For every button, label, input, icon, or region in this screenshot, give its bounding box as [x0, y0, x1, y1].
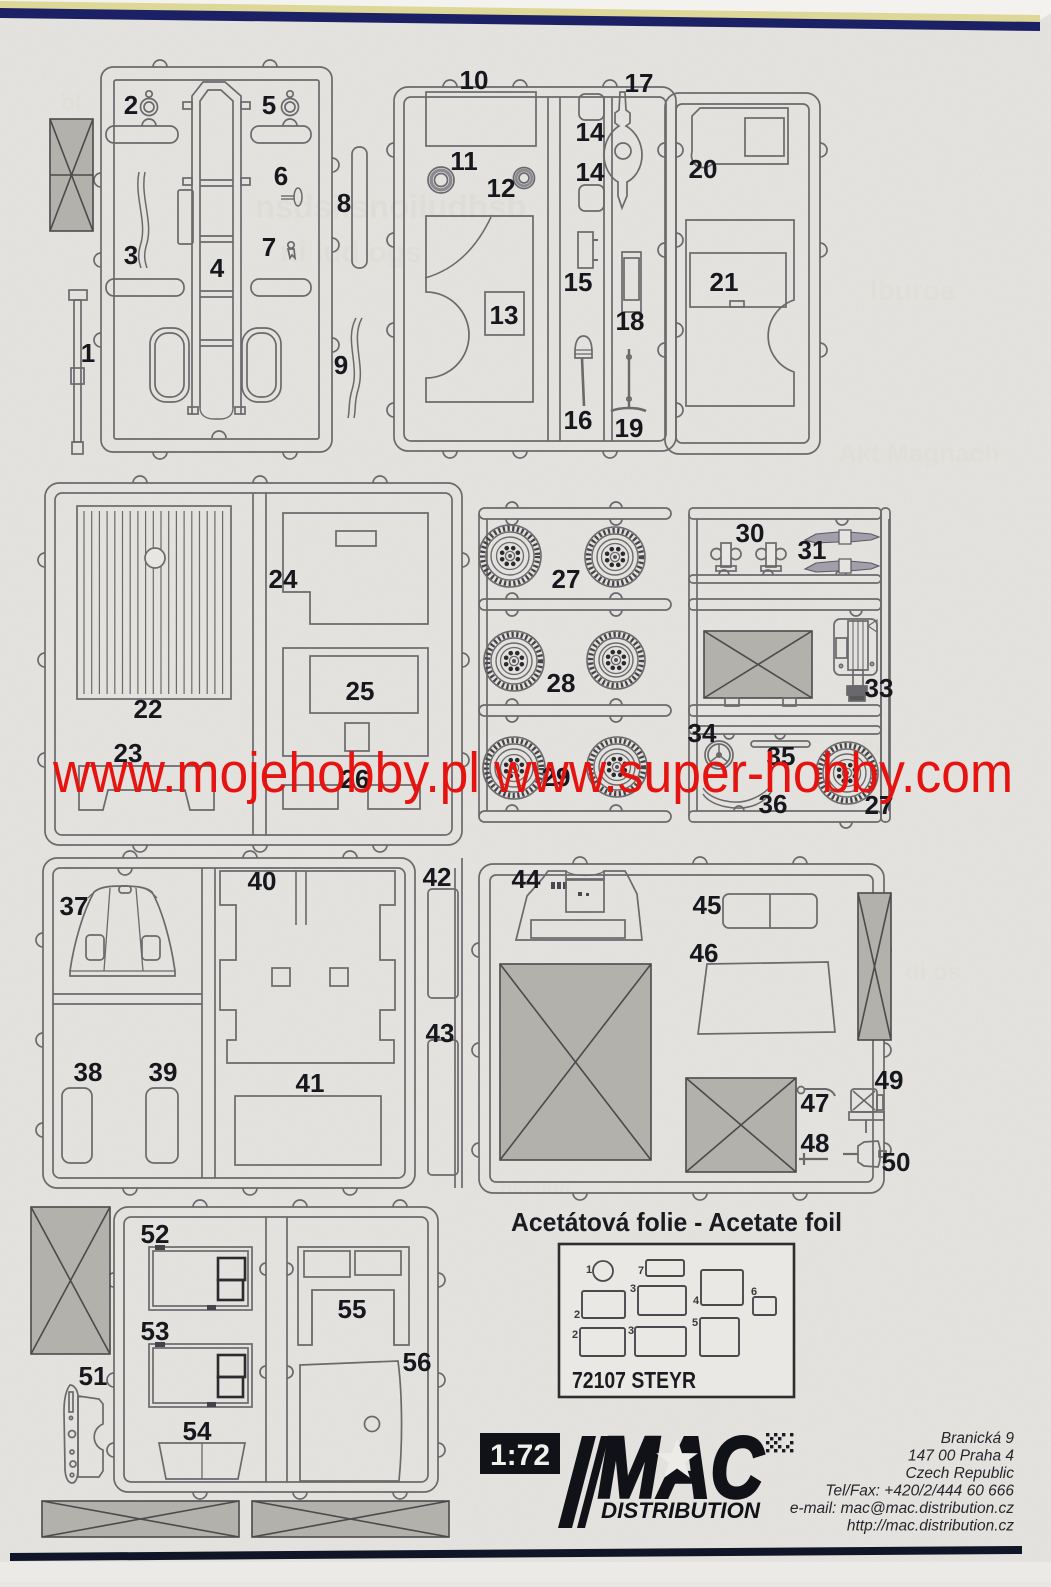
svg-text:Akt Magnach: Akt Magnach [838, 438, 1000, 468]
svg-text:147 00 Praha 4: 147 00 Praha 4 [908, 1448, 1014, 1465]
svg-text:40: 40 [248, 866, 277, 896]
svg-text:22: 22 [134, 694, 163, 724]
svg-text:42: 42 [423, 862, 452, 892]
svg-text:4: 4 [210, 253, 225, 283]
svg-text:14: 14 [576, 117, 605, 147]
svg-text:45: 45 [693, 890, 722, 920]
svg-text:bl: bl [60, 89, 81, 116]
svg-text:19: 19 [615, 413, 644, 443]
svg-text:3: 3 [124, 240, 138, 270]
svg-text:48: 48 [801, 1128, 830, 1158]
svg-text:6: 6 [751, 1286, 757, 1298]
svg-text:52: 52 [141, 1219, 170, 1249]
svg-text:lburoa: lburoa [870, 275, 956, 306]
svg-text:8: 8 [337, 188, 351, 218]
svg-text:16: 16 [564, 405, 593, 435]
svg-text:30: 30 [736, 518, 765, 548]
svg-text:39: 39 [149, 1057, 178, 1087]
svg-text:25: 25 [346, 676, 375, 706]
svg-text:18: 18 [616, 306, 645, 336]
svg-text:17: 17 [625, 68, 654, 98]
svg-text:72107 STEYR: 72107 STEYR [572, 1367, 696, 1393]
svg-text:1:72: 1:72 [490, 1439, 550, 1472]
svg-text:27: 27 [552, 564, 581, 594]
svg-text:44: 44 [512, 864, 541, 894]
svg-text:38: 38 [74, 1057, 103, 1087]
svg-text:11: 11 [450, 146, 478, 176]
svg-text:21: 21 [710, 267, 739, 297]
svg-text:1: 1 [586, 1264, 592, 1276]
svg-text:13: 13 [490, 300, 519, 330]
svg-text:14: 14 [576, 157, 605, 187]
svg-text:10: 10 [460, 65, 489, 95]
svg-text:e-mail: mac@mac.distribution.c: e-mail: mac@mac.distribution.cz [790, 1500, 1014, 1517]
svg-text:33: 33 [865, 673, 894, 703]
svg-text:9: 9 [334, 350, 348, 380]
svg-text:12: 12 [487, 173, 516, 203]
svg-text:24: 24 [269, 564, 298, 594]
svg-text:ni lud ogs: ni lud ogs [280, 236, 422, 269]
svg-text:2: 2 [574, 1309, 580, 1321]
svg-text:4: 4 [693, 1295, 700, 1307]
svg-text:50: 50 [882, 1147, 911, 1177]
svg-text:51: 51 [79, 1361, 108, 1391]
svg-text:dl os: dl os [905, 959, 961, 986]
svg-text:3: 3 [628, 1325, 634, 1337]
svg-text:28: 28 [547, 668, 576, 698]
svg-text:7: 7 [638, 1265, 644, 1277]
svg-text:Acetátová folie - Acetate foil: Acetátová folie - Acetate foil [511, 1207, 842, 1237]
svg-text:15: 15 [564, 267, 593, 297]
svg-text:41: 41 [296, 1068, 325, 1098]
svg-text:46: 46 [690, 938, 719, 968]
svg-text:Branická 9: Branická 9 [941, 1430, 1015, 1447]
svg-text:2: 2 [124, 90, 138, 120]
svg-text:43: 43 [426, 1018, 455, 1048]
svg-text:2: 2 [572, 1329, 578, 1341]
svg-text:54: 54 [183, 1416, 212, 1446]
svg-text:47: 47 [801, 1088, 830, 1118]
svg-text:5: 5 [262, 90, 276, 120]
svg-text:31: 31 [798, 535, 827, 565]
svg-text:56: 56 [403, 1347, 432, 1377]
svg-text:37: 37 [60, 891, 89, 921]
svg-text:Czech Republic: Czech Republic [905, 1465, 1014, 1482]
svg-text:DISTRIBUTION: DISTRIBUTION [601, 1498, 761, 1523]
svg-text:5: 5 [692, 1317, 698, 1329]
svg-text:20: 20 [689, 154, 718, 184]
svg-text:http://mac.distribution.cz: http://mac.distribution.cz [847, 1518, 1014, 1535]
svg-text:55: 55 [338, 1294, 367, 1324]
svg-text:3: 3 [630, 1283, 636, 1295]
svg-text:49: 49 [875, 1065, 904, 1095]
svg-text:www.mojehobby.pl www.super-hob: www.mojehobby.pl www.super-hobby.com [52, 741, 1013, 805]
svg-text:7: 7 [262, 232, 276, 262]
svg-text:6: 6 [274, 161, 288, 191]
svg-text:Tel/Fax: +420/2/444 60 666: Tel/Fax: +420/2/444 60 666 [825, 1483, 1014, 1500]
svg-text:1: 1 [81, 338, 95, 368]
svg-text:53: 53 [141, 1316, 170, 1346]
